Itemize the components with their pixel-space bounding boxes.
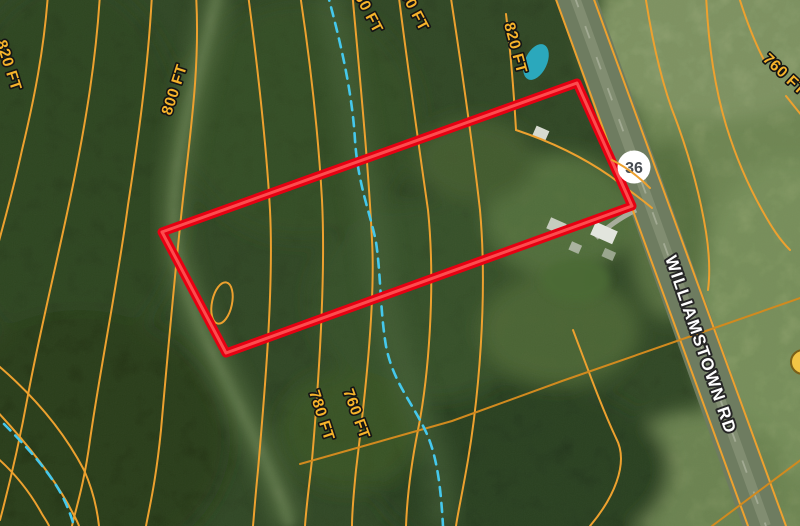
lawn-patch xyxy=(542,258,610,302)
map-canvas[interactable]: 820 FT 800 FT 760 FT 780 FT 820 FT 780 F… xyxy=(0,0,800,526)
map-viewport[interactable]: 820 FT 800 FT 760 FT 780 FT 820 FT 780 F… xyxy=(0,0,800,526)
